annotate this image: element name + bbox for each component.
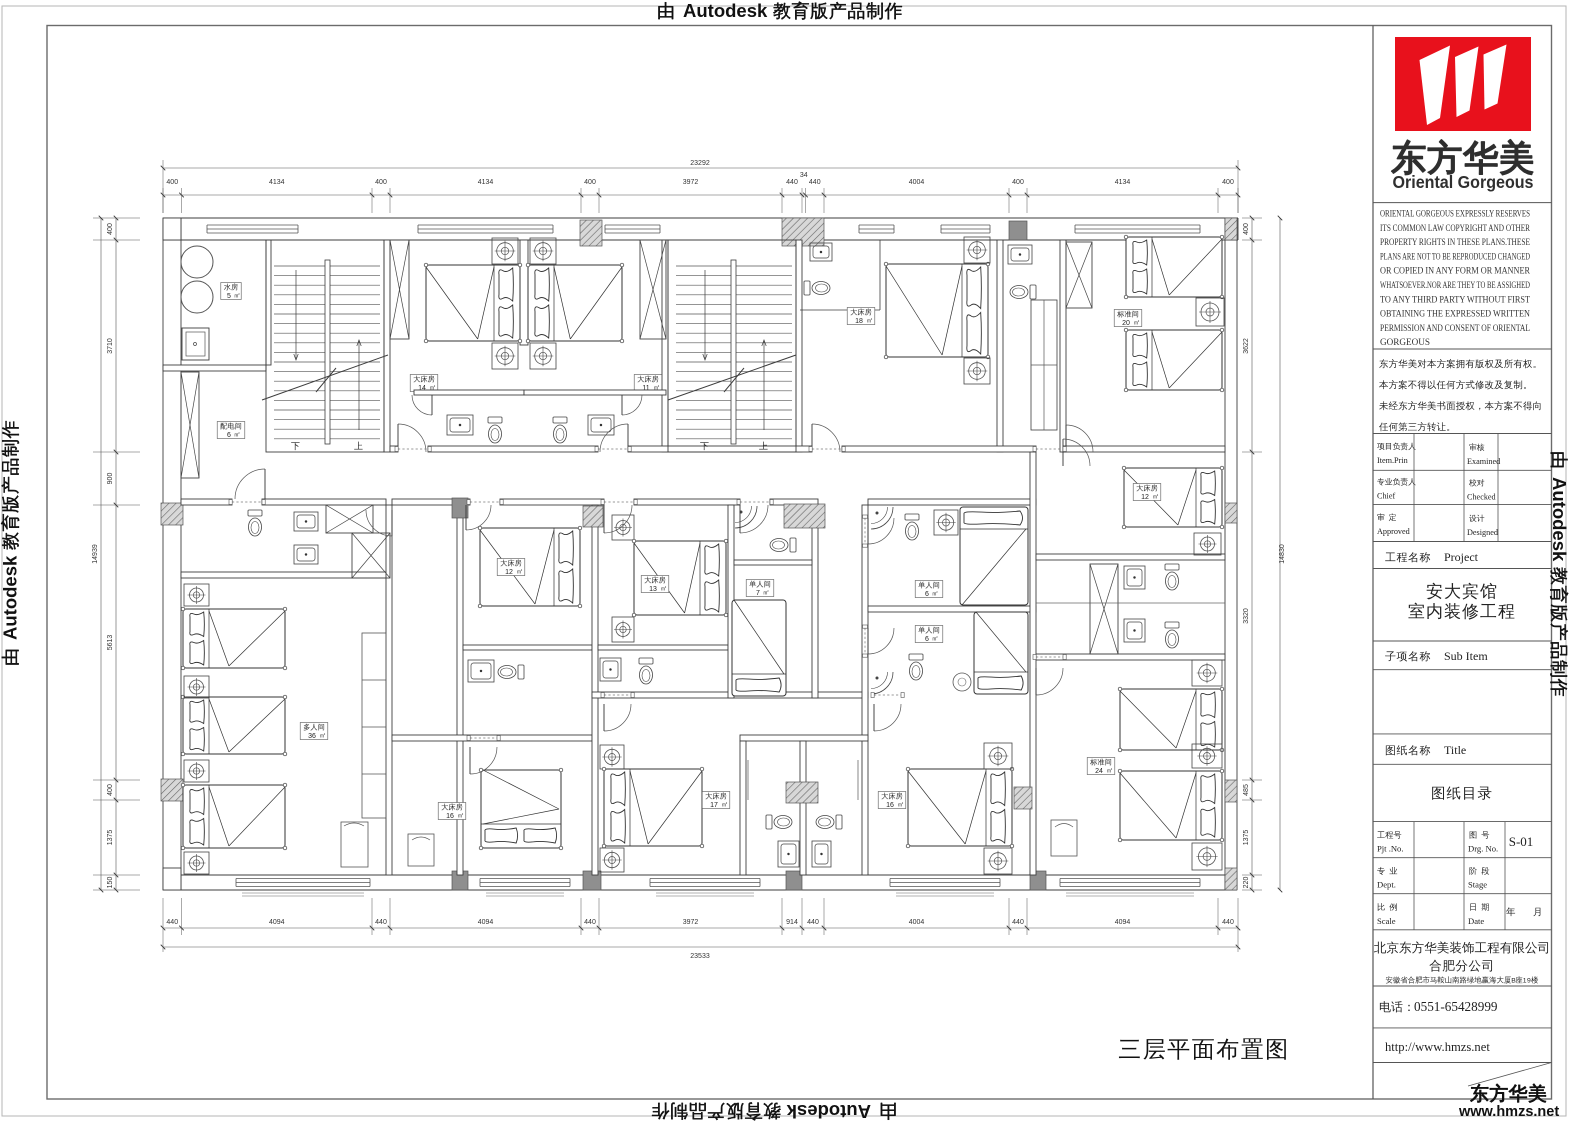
svg-text:440: 440 xyxy=(786,179,798,186)
svg-text:20: 20 xyxy=(1122,320,1130,327)
svg-text:12: 12 xyxy=(505,569,513,576)
svg-text:14830: 14830 xyxy=(1279,544,1286,564)
svg-text:400: 400 xyxy=(107,784,114,796)
svg-text:23292: 23292 xyxy=(690,160,710,167)
svg-text:3320: 3320 xyxy=(1243,608,1250,624)
svg-text:Autodesk: Autodesk xyxy=(786,1101,871,1122)
svg-text:220: 220 xyxy=(1243,877,1250,889)
svg-text:Checked: Checked xyxy=(1467,492,1496,501)
svg-text:6: 6 xyxy=(925,591,929,598)
svg-text:Title: Title xyxy=(1444,743,1466,757)
svg-text:6: 6 xyxy=(227,432,231,439)
svg-text:4094: 4094 xyxy=(1115,919,1131,926)
svg-text:Scale: Scale xyxy=(1377,916,1396,926)
svg-text:4134: 4134 xyxy=(1115,179,1131,186)
svg-text:18: 18 xyxy=(855,318,863,325)
svg-text:4094: 4094 xyxy=(269,919,285,926)
svg-text:400: 400 xyxy=(1012,179,1024,186)
svg-text:400: 400 xyxy=(107,223,114,235)
svg-text:485: 485 xyxy=(1243,784,1250,796)
svg-text:S-01: S-01 xyxy=(1509,834,1534,849)
svg-text:GORGEOUS: GORGEOUS xyxy=(1380,337,1430,347)
svg-text:3622: 3622 xyxy=(1243,338,1250,354)
svg-text:440: 440 xyxy=(166,919,178,926)
svg-text:4134: 4134 xyxy=(478,179,494,186)
svg-text:Examined: Examined xyxy=(1467,457,1500,466)
svg-text:WHATSOEVER.NOR ARE THEY TO BE: WHATSOEVER.NOR ARE THEY TO BE ASSIGHED xyxy=(1380,280,1530,290)
svg-text:ORIENTAL GORGEOUS EXPRESSLY RE: ORIENTAL GORGEOUS EXPRESSLY RESERVES xyxy=(1380,209,1530,219)
svg-text:900: 900 xyxy=(107,473,114,485)
svg-text:400: 400 xyxy=(584,179,596,186)
svg-text:34: 34 xyxy=(800,172,808,179)
svg-text:Dept.: Dept. xyxy=(1377,880,1396,890)
svg-text:3972: 3972 xyxy=(683,179,699,186)
svg-text:Autodesk: Autodesk xyxy=(683,0,768,21)
svg-text:16: 16 xyxy=(886,802,894,809)
svg-text:PLANS ARE NOT TO BE REPRODUCED: PLANS ARE NOT TO BE REPRODUCED CHANGED xyxy=(1380,251,1530,261)
svg-text:Autodesk: Autodesk xyxy=(0,555,21,640)
svg-text:0551-65428999: 0551-65428999 xyxy=(1414,999,1498,1014)
svg-text:http://www.hmzs.net: http://www.hmzs.net xyxy=(1385,1040,1490,1054)
svg-text:400: 400 xyxy=(166,179,178,186)
svg-text:Designed: Designed xyxy=(1467,528,1498,537)
svg-text:4134: 4134 xyxy=(269,179,285,186)
svg-text:TO ANY THIRD PARTY WITHOUT FIR: TO ANY THIRD PARTY WITHOUT FIRST xyxy=(1380,294,1530,304)
svg-text:5: 5 xyxy=(227,293,231,300)
svg-text:4094: 4094 xyxy=(478,919,494,926)
svg-text:150: 150 xyxy=(107,877,114,889)
svg-text:www.hmzs.net: www.hmzs.net xyxy=(1458,1104,1559,1120)
svg-text:440: 440 xyxy=(807,919,819,926)
svg-text:B: B xyxy=(1511,978,1516,985)
svg-text:24: 24 xyxy=(1095,768,1103,775)
svg-text:OR COPIED IN ANY FORM OR MANNE: OR COPIED IN ANY FORM OR MANNER xyxy=(1380,266,1531,276)
svg-text:36: 36 xyxy=(308,733,316,740)
svg-text:Item.Prin: Item.Prin xyxy=(1377,456,1408,465)
svg-text:914: 914 xyxy=(786,919,798,926)
svg-text:Stage: Stage xyxy=(1468,880,1487,890)
svg-text:16: 16 xyxy=(446,813,454,820)
svg-text:1375: 1375 xyxy=(107,830,114,846)
svg-text:400: 400 xyxy=(375,179,387,186)
svg-text:PERMISSION AND CONSENT OF ORIE: PERMISSION AND CONSENT OF ORIENTAL xyxy=(1380,323,1530,333)
svg-text:4004: 4004 xyxy=(909,179,925,186)
svg-text:3710: 3710 xyxy=(107,338,114,354)
svg-text:Pjt .No.: Pjt .No. xyxy=(1377,844,1404,854)
svg-text:9: 9 xyxy=(1527,978,1531,985)
svg-text:400: 400 xyxy=(1222,179,1234,186)
svg-text:13: 13 xyxy=(649,586,657,593)
svg-text:440: 440 xyxy=(375,919,387,926)
svg-text:Project: Project xyxy=(1444,550,1479,564)
svg-text:12: 12 xyxy=(1141,494,1149,501)
svg-text:ITS COMMON LAW COPYRIGHT AND O: ITS COMMON LAW COPYRIGHT AND OTHER xyxy=(1380,223,1531,233)
svg-text:400: 400 xyxy=(1243,223,1250,235)
svg-text:Drg. No.: Drg. No. xyxy=(1468,844,1498,854)
svg-text:7: 7 xyxy=(756,590,760,597)
svg-text:440: 440 xyxy=(1222,919,1234,926)
svg-text:14939: 14939 xyxy=(92,544,99,564)
svg-text:6: 6 xyxy=(925,636,929,643)
svg-text:440: 440 xyxy=(584,919,596,926)
svg-text:Date: Date xyxy=(1468,916,1484,926)
svg-text:23533: 23533 xyxy=(690,953,710,960)
svg-text:17: 17 xyxy=(710,802,718,809)
svg-text:Oriental Gorgeous: Oriental Gorgeous xyxy=(1393,172,1534,192)
svg-text:OBTAINING THE EXPRESSED WRITTE: OBTAINING THE EXPRESSED WRITTEN xyxy=(1380,309,1530,319)
svg-text:Chief: Chief xyxy=(1377,491,1395,500)
svg-text:1375: 1375 xyxy=(1243,830,1250,846)
svg-text:5613: 5613 xyxy=(107,635,114,651)
svg-text:440: 440 xyxy=(1012,919,1024,926)
svg-text:Sub Item: Sub Item xyxy=(1444,649,1488,663)
svg-text:Autodesk: Autodesk xyxy=(1549,477,1569,562)
svg-text:PROPERTY RIGHTS IN THESE PLANS: PROPERTY RIGHTS IN THESE PLANS.THESE xyxy=(1380,237,1530,247)
svg-text:Approved: Approved xyxy=(1377,527,1410,536)
svg-text:3972: 3972 xyxy=(683,919,699,926)
svg-text:440: 440 xyxy=(809,179,821,186)
svg-text:4004: 4004 xyxy=(909,919,925,926)
